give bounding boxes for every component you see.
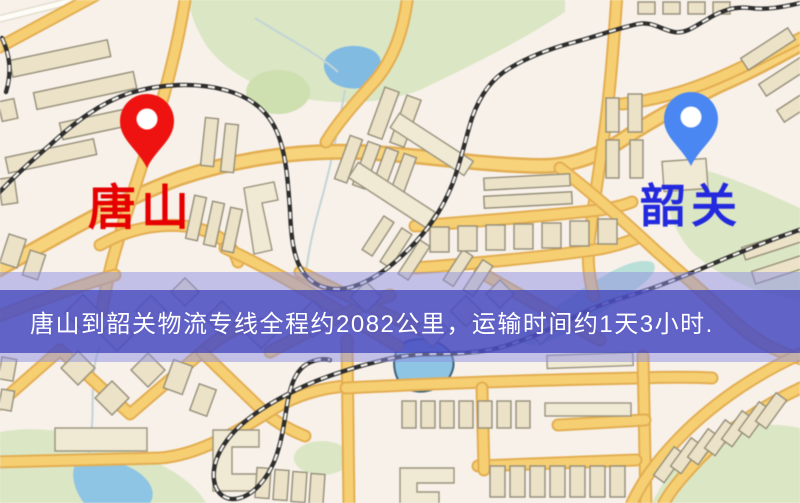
label-shaoguan: 韶关 bbox=[640, 180, 742, 232]
pin-shaoguan-hole bbox=[681, 107, 702, 128]
map-image: 唐山 韶关 bbox=[0, 0, 800, 503]
label-tangshan: 唐山 bbox=[88, 181, 194, 235]
route-info-banner: 唐山到韶关物流专线全程约2082公里，运输时间约1天3小时. bbox=[0, 290, 800, 353]
map-canvas: 唐山 韶关 唐山到韶关物流专线全程约2082公里，运输时间约1天3小时. bbox=[0, 0, 800, 503]
route-info-text: 唐山到韶关物流专线全程约2082公里，运输时间约1天3小时. bbox=[0, 304, 714, 339]
pin-tangshan-hole bbox=[137, 109, 158, 130]
